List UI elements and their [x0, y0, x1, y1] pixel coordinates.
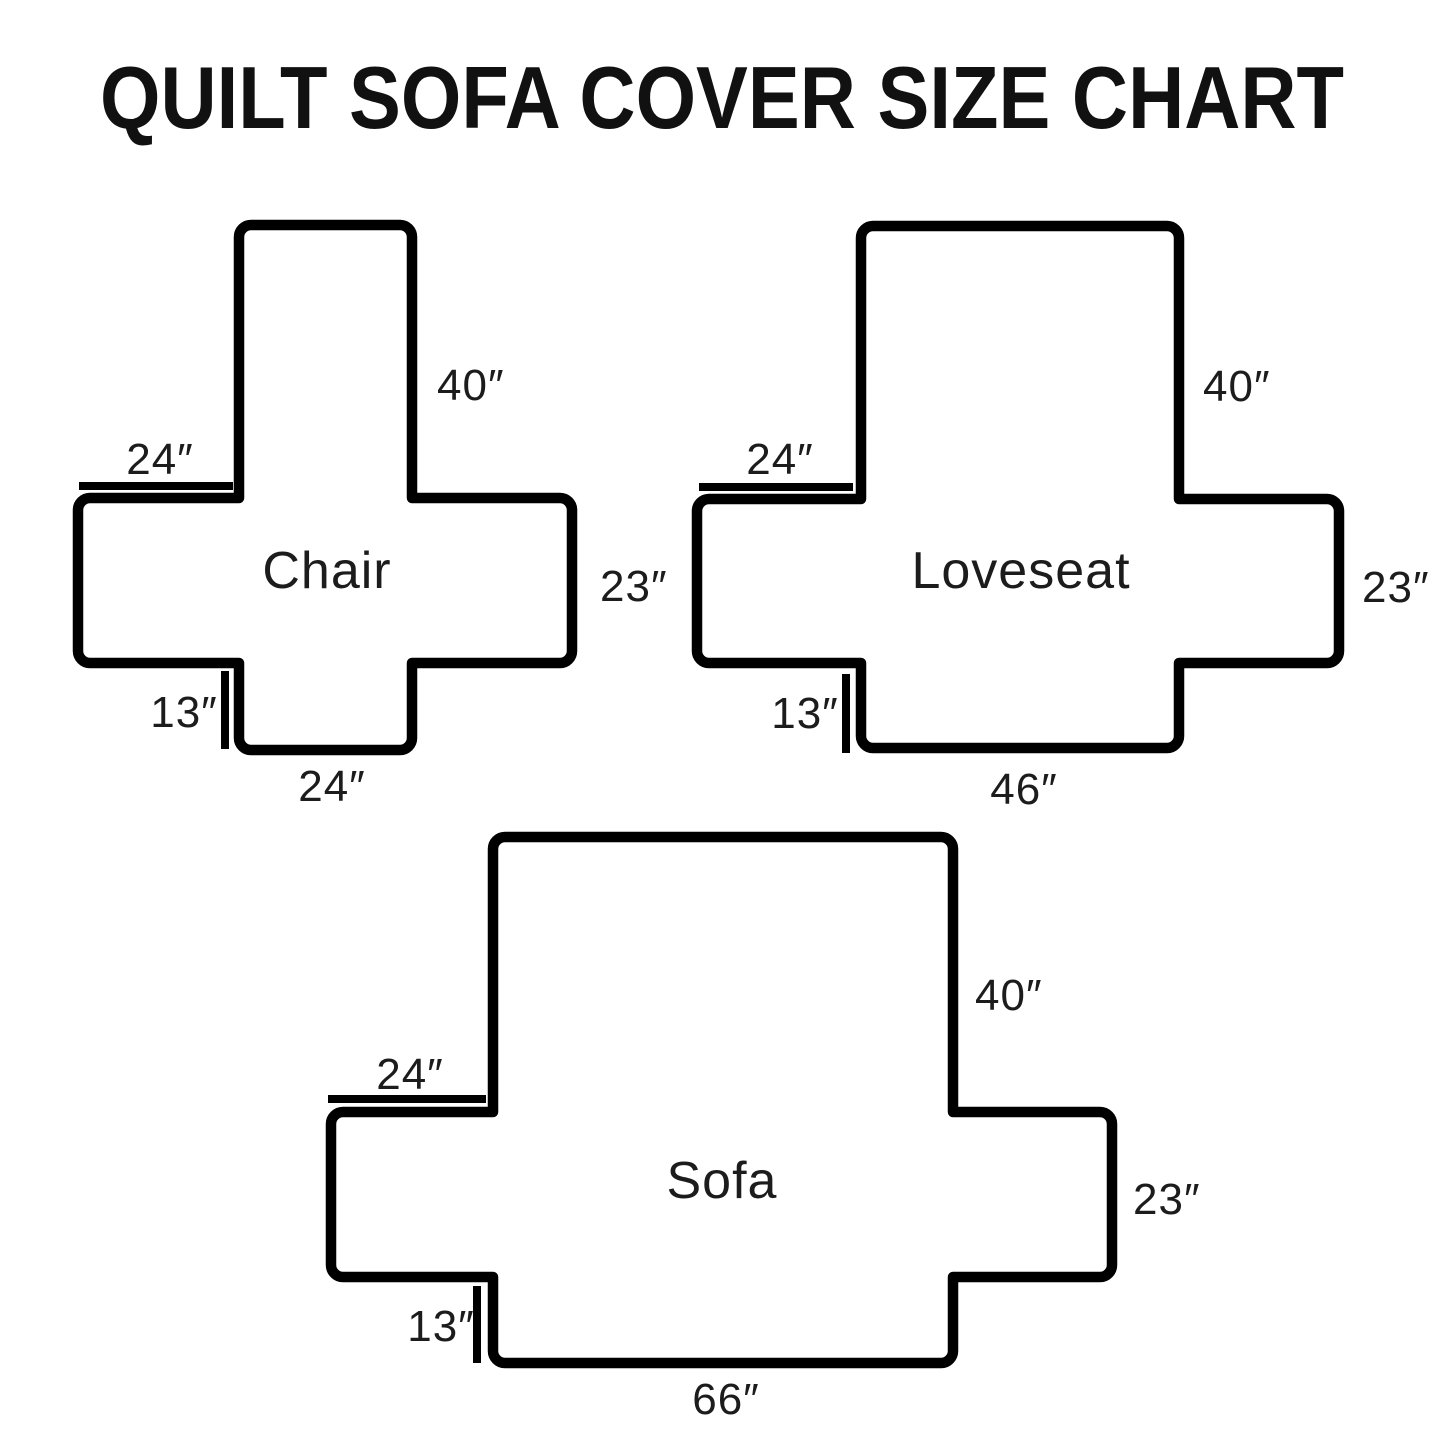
page-title: QUILT SOFA COVER SIZE CHART: [100, 48, 1344, 147]
loveseat-name-label: Loveseat: [911, 542, 1130, 600]
sofa-arm-top-width-label: 24″: [376, 1050, 444, 1099]
sofa-bottom-width-label: 66″: [692, 1375, 760, 1424]
loveseat-front-flap-height-label: 13″: [771, 689, 839, 738]
chair-arm-side-height-label: 23″: [600, 562, 668, 611]
diagram-canvas: QUILT SOFA COVER SIZE CHART 40″ 24″ Chai…: [0, 0, 1445, 1435]
chair-arm-top-width-label: 24″: [126, 435, 194, 484]
chair-front-flap-height-label: 13″: [150, 688, 218, 737]
chair-back-height-label: 40″: [437, 361, 505, 410]
sofa-arm-side-height-label: 23″: [1133, 1175, 1201, 1224]
loveseat-back-height-label: 40″: [1203, 362, 1271, 411]
sofa-back-height-label: 40″: [975, 971, 1043, 1020]
loveseat-arm-side-height-label: 23″: [1362, 563, 1430, 612]
sofa-front-flap-height-label: 13″: [407, 1302, 475, 1351]
size-chart-page: QUILT SOFA COVER SIZE CHART 40″ 24″ Chai…: [0, 0, 1445, 1435]
chair-bottom-width-label: 24″: [298, 762, 366, 811]
sofa-name-label: Sofa: [667, 1152, 778, 1210]
chair-name-label: Chair: [262, 542, 391, 600]
loveseat-bottom-width-label: 46″: [990, 765, 1058, 814]
loveseat-arm-top-width-label: 24″: [746, 435, 814, 484]
